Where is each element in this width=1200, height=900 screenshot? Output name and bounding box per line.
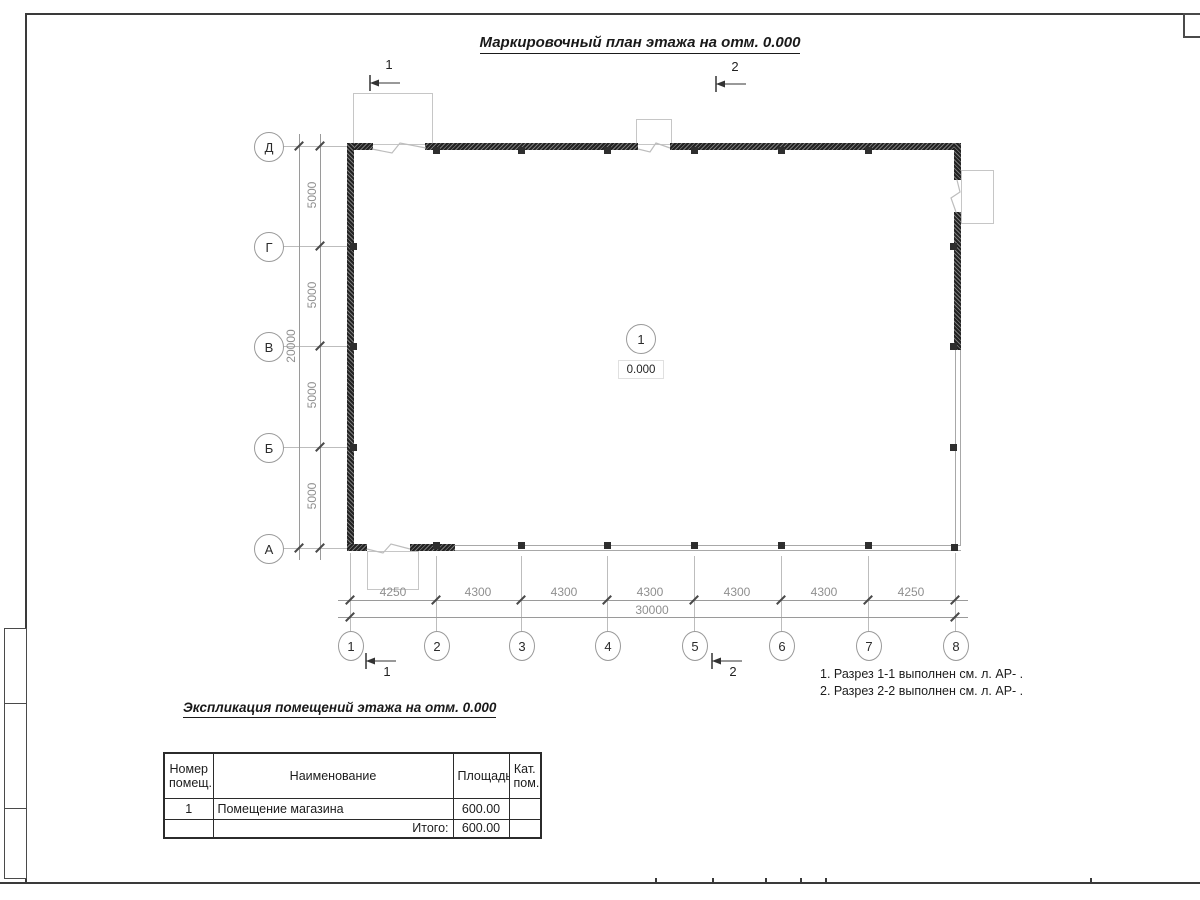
titleblock-tick — [800, 878, 802, 883]
room-number: 1 — [637, 332, 644, 347]
wall-right — [954, 143, 961, 180]
cell-room-category — [509, 798, 541, 819]
grid-column-bubble: 8 — [943, 631, 969, 661]
column-marker — [778, 147, 785, 154]
room-number-bubble: 1 — [626, 324, 656, 354]
section-1-number-top: 1 — [379, 57, 399, 72]
grid-leader — [282, 146, 347, 147]
col-header-area: Площадь — [453, 753, 509, 798]
corner-stamp-box — [1183, 13, 1200, 38]
col-header-name: Наименование — [213, 753, 453, 798]
col-header-category: Кат. пом. — [509, 753, 541, 798]
grid-column-bubble: 5 — [682, 631, 708, 661]
section-notes: 1. Разрез 1-1 выполнен см. л. АР- . 2. Р… — [820, 666, 1023, 700]
note-line: 1. Разрез 1-1 выполнен см. л. АР- . — [820, 666, 1023, 683]
grid-leader — [436, 556, 437, 632]
grid-column-bubble: 2 — [424, 631, 450, 661]
grid-leader — [868, 556, 869, 632]
door-break-line — [371, 140, 427, 156]
grid-row-bubble: Д — [254, 132, 284, 162]
column-marker — [950, 243, 957, 250]
section-1-number-bottom: 1 — [377, 664, 397, 679]
grid-column-bubble: 4 — [595, 631, 621, 661]
grid-leader — [694, 556, 695, 632]
grid-column-bubble: 3 — [509, 631, 535, 661]
grid-leader — [955, 553, 956, 632]
grid-leader — [282, 548, 347, 549]
grid-leader — [607, 556, 608, 632]
frame-top — [26, 13, 1200, 15]
plan-title: Маркировочный план этажа на отм. 0.000 — [460, 34, 820, 54]
grid-leader — [521, 556, 522, 632]
section-2-number-bottom: 2 — [723, 664, 743, 679]
grid-leader — [350, 553, 351, 632]
grid-row-bubble: А — [254, 534, 284, 564]
grid-column-bubble: 7 — [856, 631, 882, 661]
section-arrow-icon — [368, 72, 402, 94]
explication-table: Номер помещ. Наименование Площадь Кат. п… — [163, 752, 542, 839]
titleblock-tick — [712, 878, 714, 883]
door-break-line — [366, 542, 411, 558]
cell-total-area: 600.00 — [453, 819, 509, 838]
grid-leader — [781, 556, 782, 632]
column-marker — [778, 542, 785, 549]
glazed-wall-bottom — [455, 545, 961, 551]
grid-row-bubble: Г — [254, 232, 284, 262]
titleblock-tick — [825, 878, 827, 883]
column-marker — [951, 544, 958, 551]
dim-label: 4300 — [620, 585, 680, 599]
section-2-number-top: 2 — [725, 59, 745, 74]
frame-bottom — [0, 882, 1200, 884]
cell-empty — [164, 819, 213, 838]
dim-label: 5000 — [305, 377, 319, 413]
dim-label: 4300 — [534, 585, 594, 599]
dim-label: 5000 — [305, 277, 319, 313]
grid-column-bubble: 1 — [338, 631, 364, 661]
titleblock-tick — [1090, 878, 1092, 883]
column-marker — [950, 444, 957, 451]
dim-total-label: 30000 — [622, 603, 682, 617]
column-marker — [350, 243, 357, 250]
wall-top — [670, 143, 961, 150]
cell-total-label: Итого: — [213, 819, 453, 838]
left-stamp-box — [4, 628, 27, 705]
left-stamp-box — [4, 703, 27, 810]
column-marker — [518, 542, 525, 549]
dim-label: 4250 — [881, 585, 941, 599]
drawing-sheet: Маркировочный план этажа на отм. 0.000 1… — [0, 0, 1200, 900]
door-break-line — [948, 179, 964, 213]
dim-line-bottom-total — [338, 617, 968, 618]
table-row: 1 Помещение магазина 600.00 — [164, 798, 541, 819]
door-break-line — [637, 140, 671, 156]
grid-leader — [282, 246, 347, 247]
table-total-row: Итого: 600.00 — [164, 819, 541, 838]
wall-bottom — [347, 544, 367, 551]
column-marker — [604, 147, 611, 154]
floor-elevation-label: 0.000 — [618, 360, 664, 379]
column-marker — [691, 147, 698, 154]
grid-leader — [282, 447, 347, 448]
section-arrow-icon — [714, 73, 748, 95]
dim-line-left-total — [299, 134, 300, 560]
wall-right — [954, 212, 961, 350]
grid-row-bubble: В — [254, 332, 284, 362]
column-marker — [865, 542, 872, 549]
column-marker — [518, 147, 525, 154]
column-marker — [865, 147, 872, 154]
entrance-canopy — [961, 170, 994, 224]
elevation-value: 0.000 — [627, 364, 656, 376]
col-header-room-number: Номер помещ. — [164, 753, 213, 798]
titleblock-tick — [655, 878, 657, 883]
dim-label: 5000 — [305, 478, 319, 514]
cell-room-area: 600.00 — [453, 798, 509, 819]
dim-total-label: 20000 — [284, 322, 298, 370]
grid-row-bubble: Б — [254, 433, 284, 463]
note-line: 2. Разрез 2-2 выполнен см. л. АР- . — [820, 683, 1023, 700]
dim-label: 4300 — [448, 585, 508, 599]
dim-label: 4250 — [363, 585, 423, 599]
explication-title: Экспликация помещений этажа на отм. 0.00… — [183, 700, 496, 718]
column-marker — [604, 542, 611, 549]
cell-room-name: Помещение магазина — [213, 798, 453, 819]
left-stamp-box — [4, 808, 27, 879]
dim-label: 5000 — [305, 177, 319, 213]
titleblock-tick — [765, 878, 767, 883]
cell-empty — [509, 819, 541, 838]
grid-column-bubble: 6 — [769, 631, 795, 661]
dim-label: 4300 — [794, 585, 854, 599]
column-marker — [350, 444, 357, 451]
cell-room-number: 1 — [164, 798, 213, 819]
dim-label: 4300 — [707, 585, 767, 599]
column-marker — [350, 343, 357, 350]
column-marker — [433, 542, 440, 549]
column-marker — [433, 147, 440, 154]
column-marker — [691, 542, 698, 549]
column-marker — [950, 343, 957, 350]
entrance-canopy — [353, 93, 433, 145]
